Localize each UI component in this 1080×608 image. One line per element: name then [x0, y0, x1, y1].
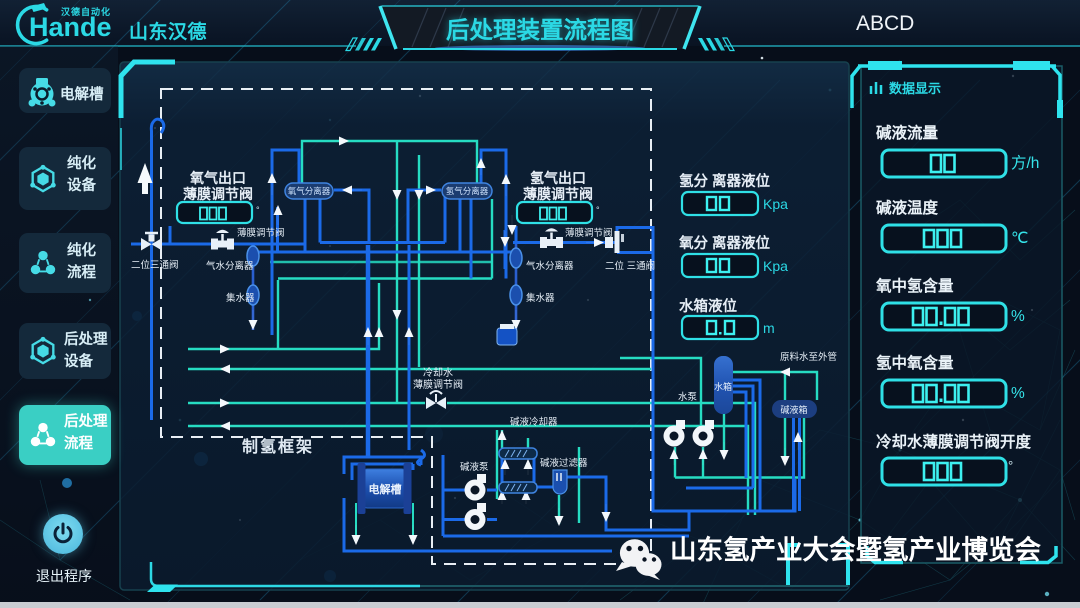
svg-text:碱液泵: 碱液泵: [460, 461, 489, 473]
svg-text:氧气出口: 氧气出口: [189, 170, 246, 186]
svg-text:冷却水薄膜调节阀开度: 冷却水薄膜调节阀开度: [876, 432, 1032, 451]
svg-text:冷却水: 冷却水: [423, 366, 453, 379]
svg-text:薄膜调节阀: 薄膜调节阀: [183, 186, 253, 202]
svg-text:水泵: 水泵: [678, 391, 698, 403]
svg-text:碱液冷却器: 碱液冷却器: [510, 416, 558, 428]
svg-text:°: °: [596, 205, 600, 215]
svg-text:°: °: [1008, 458, 1013, 473]
svg-text:原料水至外管: 原料水至外管: [780, 351, 837, 363]
svg-text:%: %: [1011, 385, 1025, 402]
svg-text:集水器: 集水器: [226, 292, 255, 304]
svg-text:数据显示: 数据显示: [889, 81, 941, 96]
svg-text:碱液流量: 碱液流量: [876, 123, 939, 142]
svg-text:碱液过滤器: 碱液过滤器: [540, 457, 588, 469]
svg-text:二位 三通阀: 二位 三通阀: [605, 260, 655, 272]
svg-text:薄膜调节阀: 薄膜调节阀: [565, 227, 613, 239]
svg-text:水箱: 水箱: [714, 381, 732, 392]
svg-text:集水器: 集水器: [526, 292, 555, 304]
svg-text:氢气出口: 氢气出口: [530, 170, 586, 186]
svg-text:氧分 离器液位: 氧分 离器液位: [678, 234, 771, 252]
svg-text:氢气分离器: 氢气分离器: [446, 186, 489, 196]
svg-text:氢中氧含量: 氢中氧含量: [876, 353, 954, 372]
svg-text:气水分离器: 气水分离器: [526, 260, 574, 272]
svg-text:薄膜调节阀: 薄膜调节阀: [523, 186, 593, 202]
svg-text:m: m: [763, 320, 775, 336]
svg-text:碱液箱: 碱液箱: [780, 404, 807, 415]
svg-text:Kpa: Kpa: [763, 196, 788, 212]
svg-text:°: °: [256, 205, 260, 215]
svg-text:氧中氢含量: 氧中氢含量: [875, 276, 954, 295]
svg-text:水箱液位: 水箱液位: [679, 297, 737, 315]
svg-text:薄膜调节阀: 薄膜调节阀: [237, 227, 285, 239]
svg-text:氧气分离器: 氧气分离器: [288, 186, 331, 196]
svg-text:二位三通阀: 二位三通阀: [131, 259, 179, 271]
svg-text:山东氢产业大会暨氢产业博览会: 山东氢产业大会暨氢产业博览会: [670, 535, 1041, 565]
svg-text:薄膜调节阀: 薄膜调节阀: [413, 378, 463, 391]
svg-text:碱液温度: 碱液温度: [876, 198, 939, 217]
svg-text:制氢框架: 制氢框架: [242, 437, 314, 456]
svg-text:气水分离器: 气水分离器: [206, 260, 254, 272]
svg-text:方/h: 方/h: [1011, 154, 1039, 172]
svg-text:氢分 离器液位: 氢分 离器液位: [679, 172, 771, 190]
svg-text:电解槽: 电解槽: [369, 482, 402, 496]
svg-text:℃: ℃: [1011, 230, 1028, 247]
svg-text:Kpa: Kpa: [763, 258, 788, 274]
svg-text:%: %: [1011, 308, 1025, 325]
